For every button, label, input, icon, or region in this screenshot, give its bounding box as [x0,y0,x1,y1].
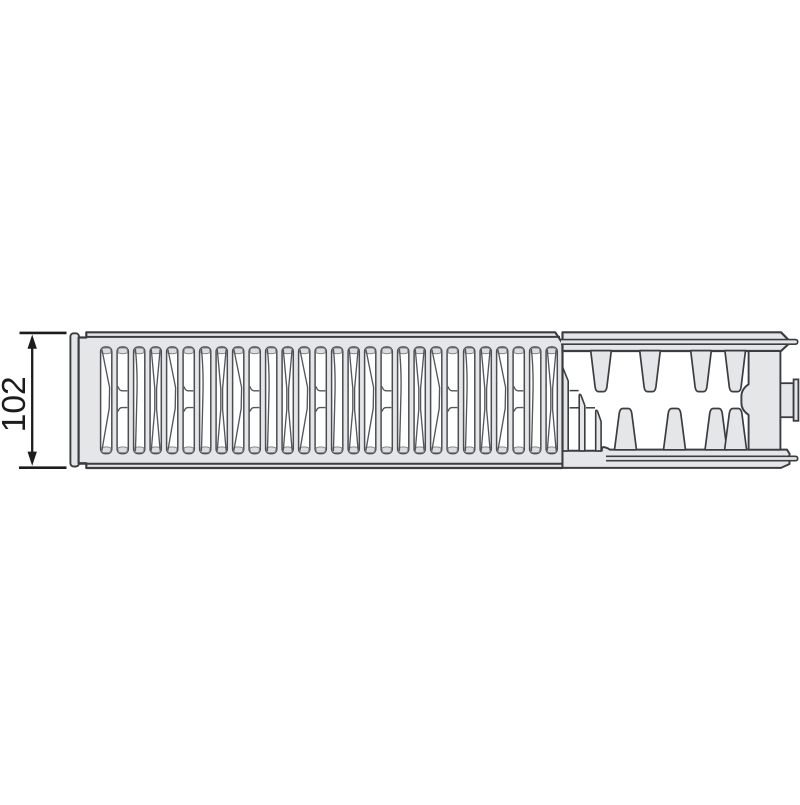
svg-text:102: 102 [0,376,33,432]
